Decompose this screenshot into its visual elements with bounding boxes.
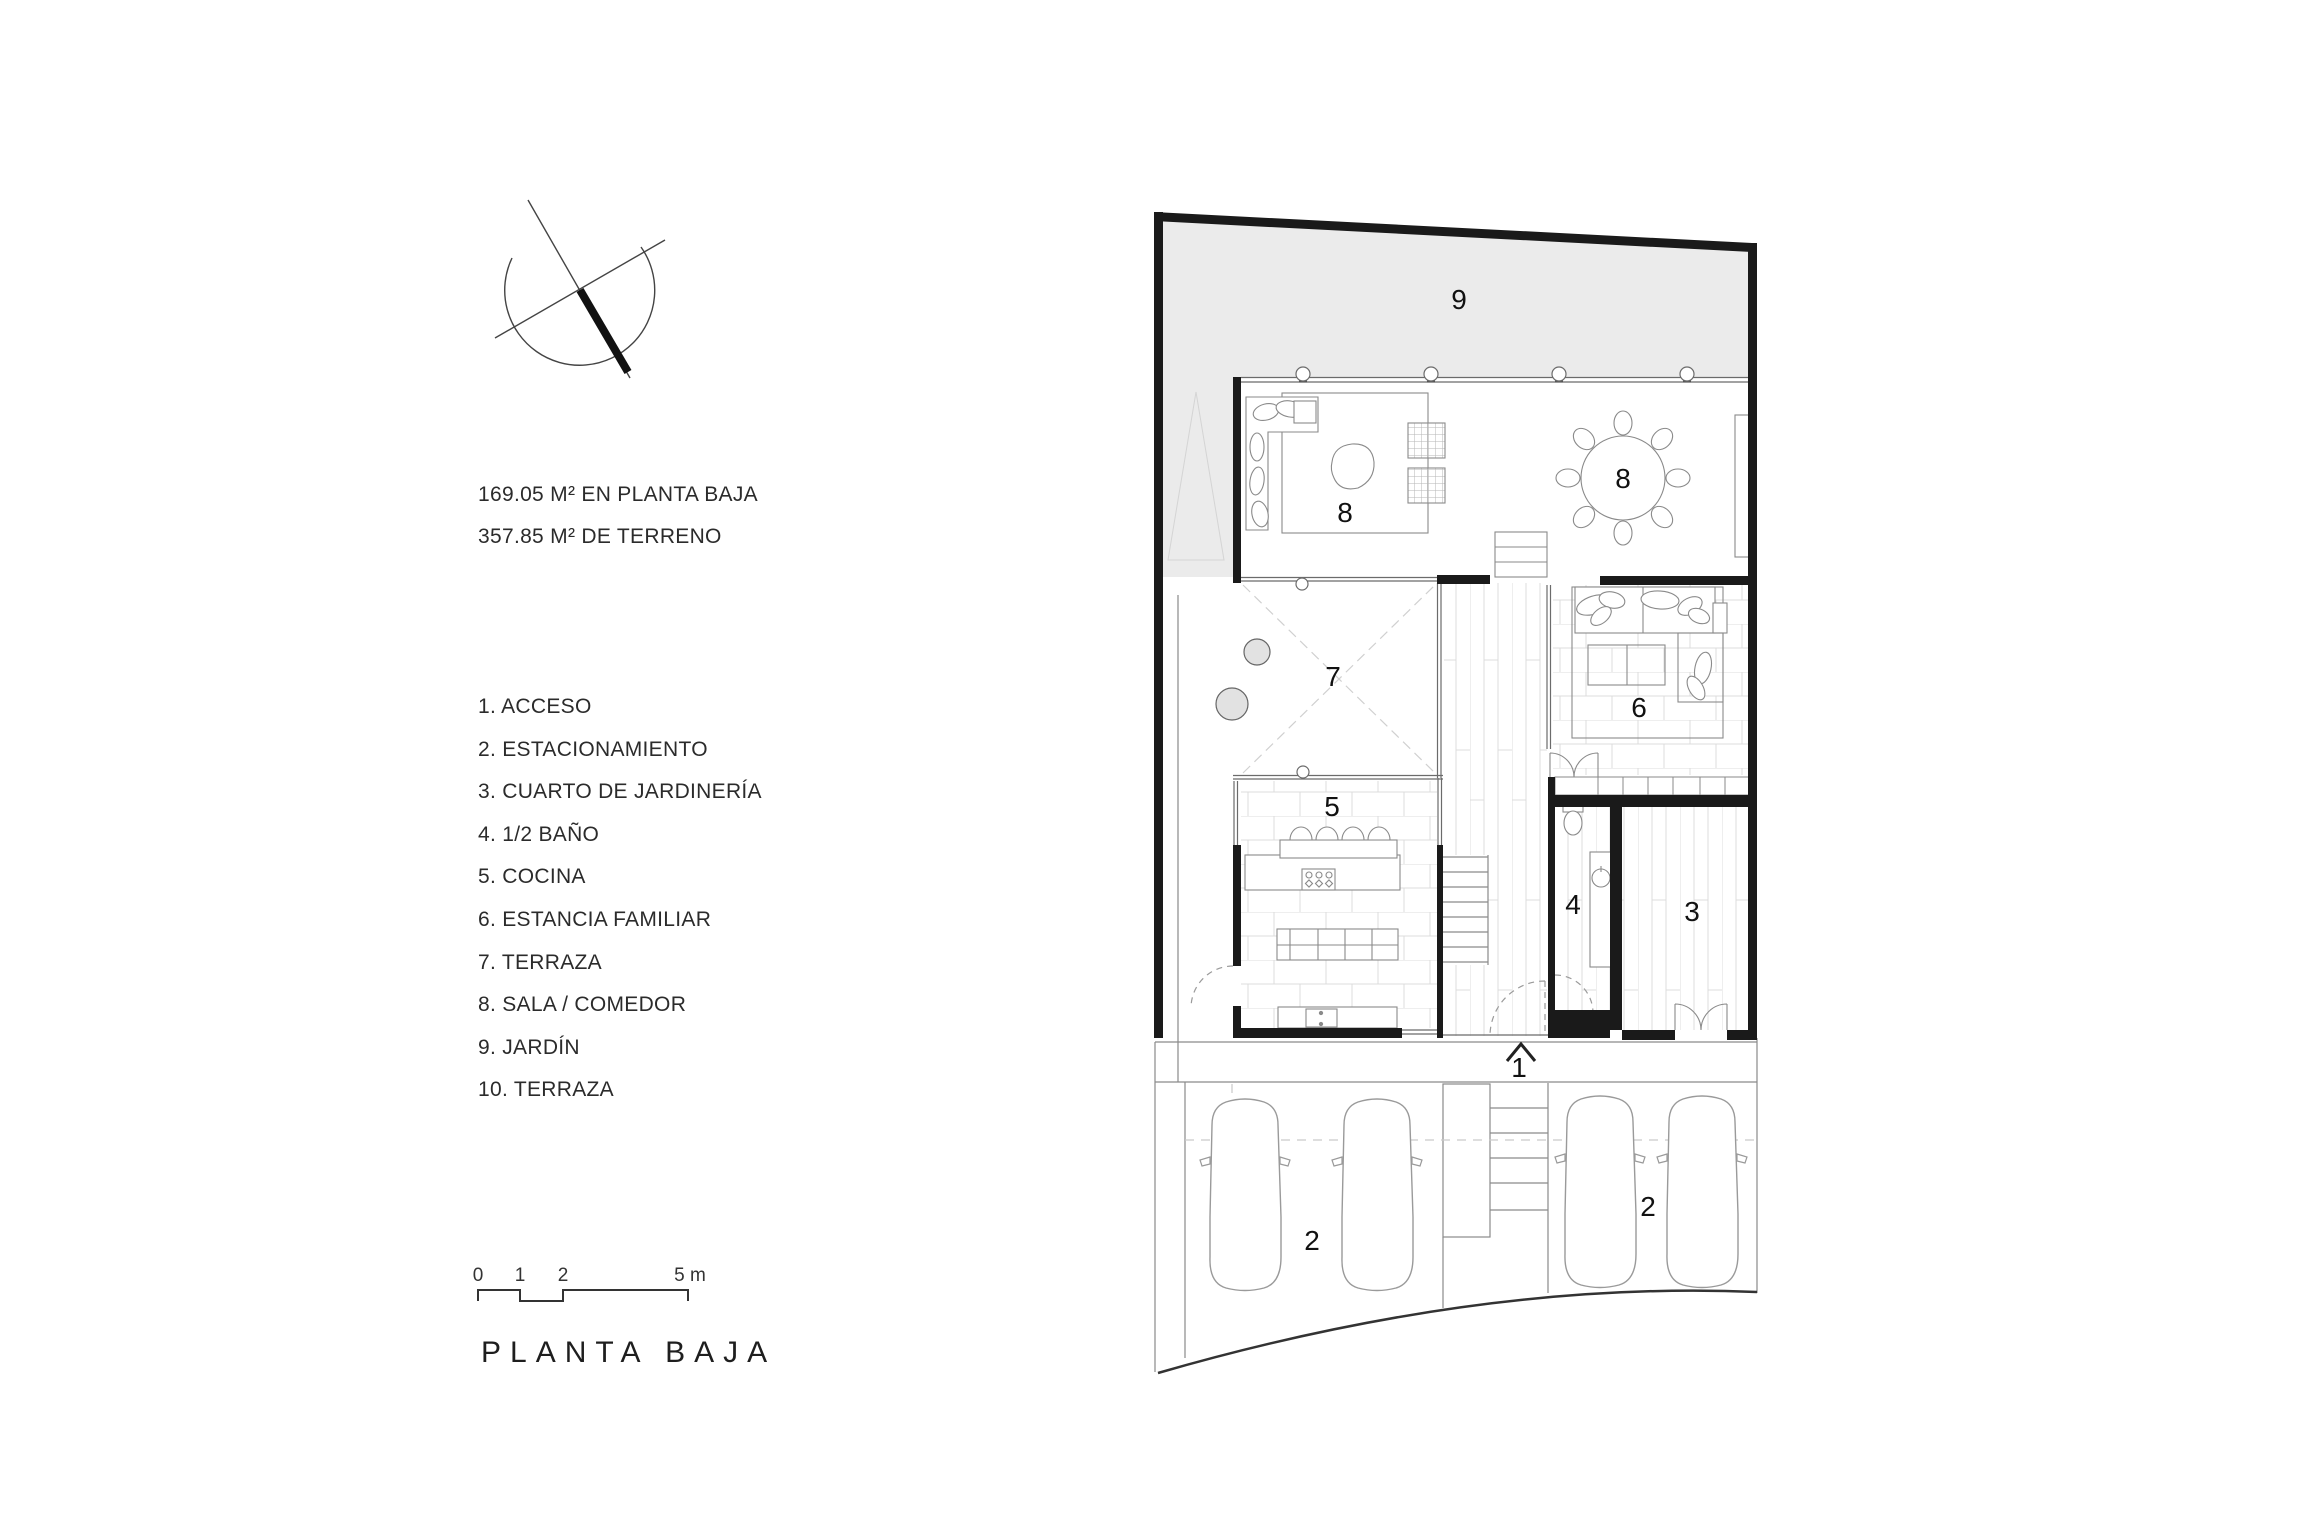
room-label-acceso: 1 bbox=[1511, 1052, 1527, 1083]
north-arrow-icon bbox=[495, 200, 665, 378]
floor-plan: 9 8 8 7 6 5 4 3 1 2 2 bbox=[1154, 212, 1757, 1373]
sheet: 169.05 M² EN PLANTA BAJA 357.85 M² DE TE… bbox=[0, 0, 2304, 1536]
room-label-sala: 8 bbox=[1337, 497, 1353, 528]
room-label-estancia: 6 bbox=[1631, 692, 1647, 723]
room-label-cocina: 5 bbox=[1324, 791, 1340, 822]
scale-tick-1: 1 bbox=[515, 1265, 526, 1286]
room-label-parking-left: 2 bbox=[1304, 1225, 1320, 1256]
room-label-jardineria: 3 bbox=[1684, 896, 1700, 927]
room-label-comedor: 8 bbox=[1615, 463, 1631, 494]
street-curb bbox=[1158, 1291, 1757, 1373]
living-dining-furniture bbox=[1246, 393, 1749, 577]
room-label-jardin: 9 bbox=[1451, 284, 1467, 315]
floor-finishes bbox=[1241, 583, 1749, 1036]
scale-tick-5m: 5 m bbox=[674, 1265, 706, 1286]
room-label-parking-right: 2 bbox=[1640, 1191, 1656, 1222]
room-label-terraza: 7 bbox=[1325, 661, 1341, 692]
scale-tick-2: 2 bbox=[558, 1265, 569, 1286]
room-label-banio: 4 bbox=[1565, 889, 1581, 920]
floor-plan-canvas: 0 1 2 5 m bbox=[0, 0, 2304, 1536]
scale-tick-0: 0 bbox=[473, 1265, 484, 1286]
scale-bar: 0 1 2 5 m bbox=[473, 1265, 706, 1301]
tile-strip bbox=[1555, 777, 1749, 795]
stairs bbox=[1443, 855, 1488, 965]
